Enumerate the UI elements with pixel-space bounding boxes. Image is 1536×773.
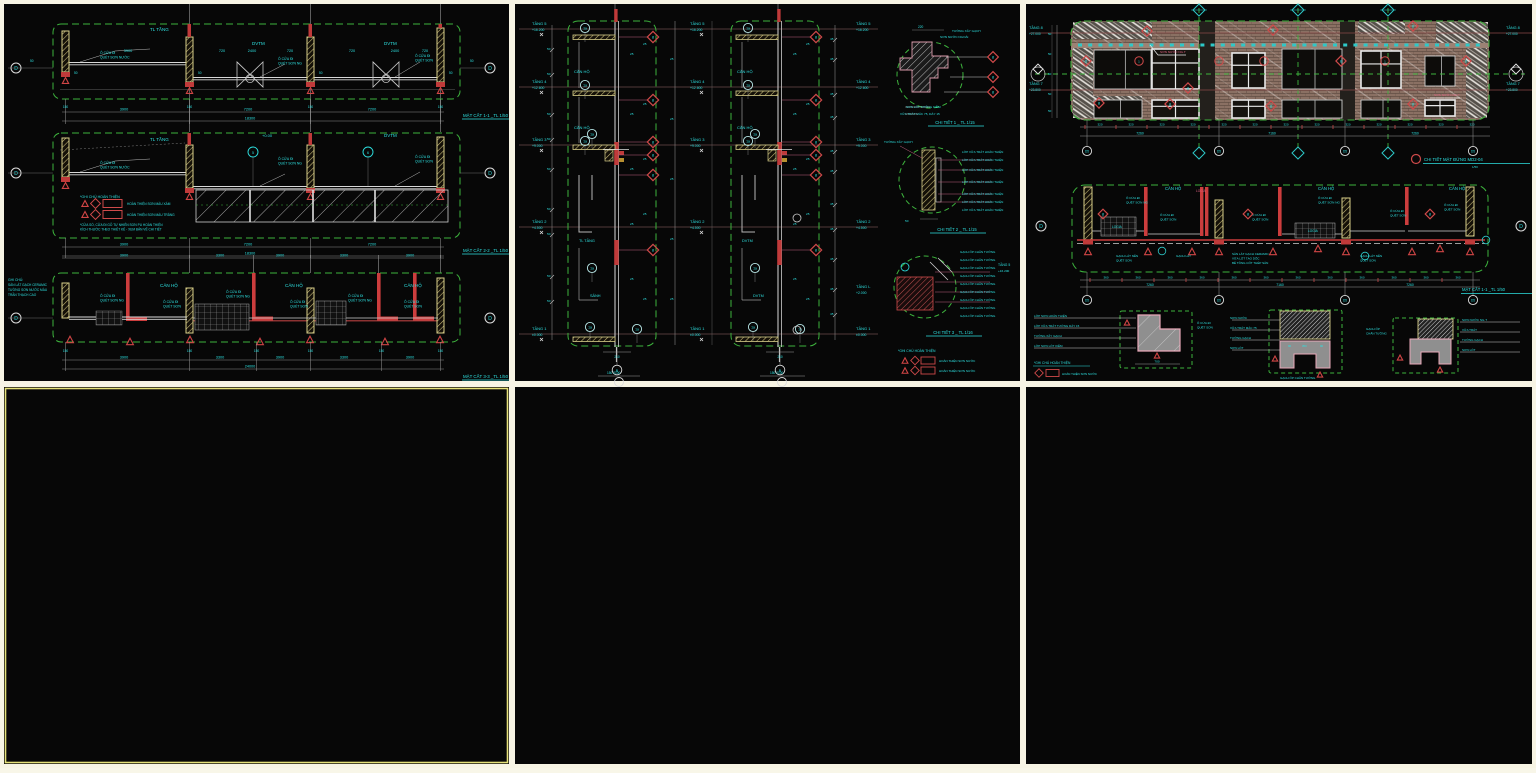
svg-text:18300: 18300 [245, 252, 256, 256]
svg-text:7200: 7200 [368, 243, 376, 247]
svg-text:210: 210 [777, 355, 783, 359]
svg-text:GẠCH ỐP CHÂN TƯỜNG: GẠCH ỐP CHÂN TƯỜNG [960, 273, 996, 278]
svg-text:BÊ TÔNG CỐT THÉP SÀN: BÊ TÔNG CỐT THÉP SÀN [1232, 260, 1268, 265]
svg-text:QUÉT SƠN NƯỚC: QUÉT SƠN NƯỚC [100, 55, 130, 60]
svg-text:DVTM: DVTM [384, 41, 397, 46]
svg-text:D: D [14, 66, 18, 72]
svg-text:320: 320 [1283, 123, 1288, 127]
svg-text:±0.000: ±0.000 [532, 333, 542, 337]
svg-text:45: 45 [830, 202, 834, 206]
svg-text:360: 360 [1263, 276, 1268, 280]
svg-text:24000: 24000 [245, 365, 256, 369]
svg-text:LỚP VỮA TRÁT TƯỜNG DÀY 15: LỚP VỮA TRÁT TƯỜNG DÀY 15 [1034, 323, 1080, 328]
svg-text:3900: 3900 [120, 243, 128, 247]
svg-text:TẦNG 7: TẦNG 7 [1029, 82, 1043, 86]
svg-text:50: 50 [319, 71, 323, 75]
svg-text:25: 25 [643, 297, 647, 301]
svg-text:+4.500: +4.500 [532, 226, 543, 230]
svg-text:7260: 7260 [1146, 283, 1154, 287]
svg-text:TL TẦNG: TL TẦNG [150, 136, 169, 142]
svg-text:+16.200: +16.200 [998, 269, 1010, 273]
svg-text:150: 150 [438, 105, 444, 109]
svg-text:+12.600: +12.600 [532, 86, 544, 90]
svg-text:TẦNG 2: TẦNG 2 [532, 219, 547, 224]
svg-text:25: 25 [793, 222, 797, 226]
svg-text:3900: 3900 [276, 356, 284, 360]
svg-text:VỮA TRÁT MÁC 75: VỮA TRÁT MÁC 75 [1230, 325, 1257, 330]
svg-text:TẦNG 5: TẦNG 5 [690, 21, 705, 26]
svg-text:90: 90 [1320, 344, 1324, 348]
svg-text:3900: 3900 [406, 356, 414, 360]
svg-text:SƠN LÓT: SƠN LÓT [1462, 347, 1476, 352]
svg-text:HOÀN THIỆN SƠN MÀU XÁM: HOÀN THIỆN SƠN MÀU XÁM [127, 201, 171, 206]
svg-text:+2.000: +2.000 [856, 291, 867, 295]
svg-text:D5: D5 [1343, 299, 1347, 303]
svg-text:TẦNG 5: TẦNG 5 [856, 21, 871, 26]
svg-text:50: 50 [449, 71, 453, 75]
svg-text:CHI TIẾT 2 _ TL 1/15: CHI TIẾT 2 _ TL 1/15 [937, 227, 977, 232]
svg-text:50: 50 [1048, 32, 1052, 36]
svg-text:TẦNG 3: TẦNG 3 [532, 137, 547, 142]
svg-text:GẠCH ỐP CHÂN TƯỜNG: GẠCH ỐP CHÂN TƯỜNG [960, 313, 996, 318]
svg-text:45: 45 [830, 92, 834, 96]
svg-text:CĂN HỘ: CĂN HỘ [1165, 186, 1182, 191]
svg-text:150: 150 [379, 349, 385, 353]
svg-text:Ô CỬA ĐI: Ô CỬA ĐI [348, 293, 363, 298]
svg-text:25: 25 [793, 277, 797, 281]
svg-text:D: D [488, 316, 492, 322]
svg-text:1a: 1a [746, 27, 750, 31]
svg-text:GẠCH ỐP CHÂN TƯỜNG: GẠCH ỐP CHÂN TƯỜNG [960, 297, 996, 302]
svg-text:25: 25 [806, 102, 810, 106]
svg-text:TẦNG 3: TẦNG 3 [690, 137, 705, 142]
svg-text:320: 320 [1469, 123, 1474, 127]
svg-text:150: 150 [187, 105, 193, 109]
svg-text:7200: 7200 [368, 108, 376, 112]
svg-text:150: 150 [63, 105, 69, 109]
svg-text:45: 45 [830, 257, 834, 261]
svg-text:150: 150 [254, 349, 260, 353]
svg-text:Ô CỬA ĐI: Ô CỬA ĐI [278, 156, 293, 161]
svg-text:TẦNG 4: TẦNG 4 [690, 79, 705, 84]
svg-text:LOGIA: LOGIA [1112, 225, 1123, 229]
svg-text:SƠN LÓT CHỐNG KIỀM: SƠN LÓT CHỐNG KIỀM [906, 104, 941, 109]
svg-text:QUÉT SƠN: QUÉT SƠN [415, 58, 433, 63]
svg-text:DVTM: DVTM [753, 294, 764, 298]
svg-text:1a: 1a [798, 328, 802, 332]
svg-text:320: 320 [1221, 123, 1226, 127]
svg-text:VỮA TRÁT: VỮA TRÁT [1462, 327, 1477, 332]
svg-text:3300: 3300 [216, 356, 224, 360]
svg-text:50: 50 [30, 59, 34, 63]
svg-text:QUÉT SƠN NG: QUÉT SƠN NG [348, 298, 372, 303]
svg-text:360: 360 [1359, 276, 1364, 280]
svg-text:50: 50 [1048, 72, 1052, 76]
svg-text:GẠCH LÁT NỀN: GẠCH LÁT NỀN [1116, 253, 1138, 258]
svg-text:90: 90 [1288, 344, 1292, 348]
svg-text:+12.600: +12.600 [690, 86, 702, 90]
svg-text:50: 50 [547, 299, 551, 303]
svg-text:45: 45 [830, 37, 834, 41]
svg-text:1a: 1a [751, 326, 755, 330]
svg-text:320: 320 [1376, 123, 1381, 127]
svg-text:GẠCH ỐP CHÂN TƯỜNG: GẠCH ỐP CHÂN TƯỜNG [1280, 375, 1316, 380]
svg-text:1a: 1a [588, 326, 592, 330]
svg-text:*GHI CHÚ HOÀN THIỆN: *GHI CHÚ HOÀN THIỆN [80, 194, 120, 199]
svg-text:25: 25 [793, 167, 797, 171]
svg-text:LỚP VỮA TRÁT HOÀN THIỆN: LỚP VỮA TRÁT HOÀN THIỆN [962, 199, 1003, 204]
svg-text:50: 50 [547, 72, 551, 76]
svg-text:CĂN HỘ: CĂN HỘ [737, 125, 753, 130]
svg-text:SẢNH: SẢNH [590, 293, 601, 298]
svg-text:150: 150 [187, 349, 193, 353]
svg-text:D5: D5 [1217, 150, 1221, 154]
svg-text:Ô CỬA ĐI: Ô CỬA ĐI [100, 293, 115, 298]
svg-text:360: 360 [1231, 276, 1236, 280]
svg-text:3900: 3900 [120, 254, 128, 258]
svg-text:7160: 7160 [1268, 132, 1276, 136]
svg-text:TƯỜNG XÂY GẠCH: TƯỜNG XÂY GẠCH [1034, 333, 1062, 338]
svg-text:1a: 1a [746, 140, 750, 144]
svg-text:TẦNG 1: TẦNG 1 [690, 326, 705, 331]
svg-text:3300: 3300 [340, 254, 348, 258]
svg-text:LỚP SƠN LÓT KIỀM: LỚP SƠN LÓT KIỀM [1034, 343, 1063, 348]
svg-text:700: 700 [1154, 360, 1159, 364]
svg-text:TẦNG 7: TẦNG 7 [1506, 82, 1520, 86]
svg-text:360: 360 [1167, 276, 1172, 280]
svg-text:GẠCH LÁT NỀN: GẠCH LÁT NỀN [1360, 253, 1382, 258]
svg-text:7200: 7200 [244, 108, 252, 112]
svg-text:1a: 1a [753, 267, 757, 271]
svg-text:3900: 3900 [124, 49, 132, 53]
svg-text:50: 50 [547, 137, 551, 141]
svg-text:1a: 1a [590, 133, 594, 137]
svg-text:7260: 7260 [1411, 132, 1419, 136]
svg-text:7200: 7200 [244, 243, 252, 247]
svg-text:VỮA TRÁT MÁC 75, DÀY 15: VỮA TRÁT MÁC 75, DÀY 15 [900, 111, 940, 116]
svg-text:GẠCH ỐP CHÂN TƯỜNG: GẠCH ỐP CHÂN TƯỜNG [960, 257, 996, 262]
svg-text:25: 25 [630, 277, 634, 281]
svg-text:50: 50 [547, 232, 551, 236]
svg-text:TẦNG 1: TẦNG 1 [856, 326, 871, 331]
svg-text:350: 350 [1302, 344, 1307, 348]
svg-text:25: 25 [806, 157, 810, 161]
svg-text:50: 50 [547, 112, 551, 116]
svg-text:45: 45 [830, 312, 834, 316]
svg-text:25: 25 [630, 112, 634, 116]
svg-text:720: 720 [422, 49, 428, 53]
svg-text:Ô CỬA ĐI: Ô CỬA ĐI [404, 299, 419, 304]
svg-text:MẶT CẮT 1-1 _TL 1/50: MẶT CẮT 1-1 _TL 1/50 [463, 113, 509, 118]
svg-text:DVTM: DVTM [252, 41, 265, 46]
svg-text:6: 6 [367, 151, 369, 155]
svg-text:CĂN HỘ: CĂN HỘ [1318, 186, 1335, 191]
svg-text:CĂN HỘ: CĂN HỘ [285, 282, 303, 288]
svg-text:25: 25 [670, 117, 674, 121]
svg-text:25: 25 [643, 42, 647, 46]
svg-text:3900: 3900 [120, 108, 128, 112]
svg-text:TẦNG 4: TẦNG 4 [532, 79, 547, 84]
svg-text:25: 25 [670, 177, 674, 181]
svg-text:25: 25 [643, 102, 647, 106]
svg-text:+9.000: +9.000 [856, 144, 867, 148]
svg-text:7260: 7260 [1406, 283, 1414, 287]
svg-text:D5: D5 [1085, 299, 1089, 303]
svg-text:220: 220 [918, 25, 924, 29]
svg-text:+4.500: +4.500 [856, 226, 867, 230]
svg-text:720: 720 [287, 49, 293, 53]
svg-text:50: 50 [74, 71, 78, 75]
svg-text:SÀN LÁT GẠCH CERAMIC: SÀN LÁT GẠCH CERAMIC [8, 283, 48, 287]
svg-text:7260: 7260 [1136, 132, 1144, 136]
svg-text:50: 50 [547, 167, 551, 171]
svg-text:3300: 3300 [340, 356, 348, 360]
svg-text:Ô CỬA ĐI: Ô CỬA ĐI [1444, 202, 1458, 207]
svg-text:50: 50 [547, 274, 551, 278]
svg-text:SƠN NƯỚC NGOÀI: SƠN NƯỚC NGOÀI [940, 34, 969, 39]
svg-text:SƠN NƯỚC NG.T: SƠN NƯỚC NG.T [1160, 49, 1186, 54]
svg-text:LỚP VỮA TRÁT HOÀN THIỆN: LỚP VỮA TRÁT HOÀN THIỆN [962, 179, 1003, 184]
svg-text:TẦNG L: TẦNG L [856, 284, 871, 289]
svg-text:QUÉT SƠN NG: QUÉT SƠN NG [1126, 200, 1148, 205]
svg-text:+12.600: +12.600 [856, 86, 868, 90]
svg-text:HOÀN THIỆN SƠN NƯỚC: HOÀN THIỆN SƠN NƯỚC [939, 368, 976, 373]
svg-text:25: 25 [806, 212, 810, 216]
svg-text:GHI CHÚ:: GHI CHÚ: [8, 277, 23, 282]
svg-text:±0.000: ±0.000 [856, 333, 866, 337]
svg-text:QUÉT SƠN NG: QUÉT SƠN NG [278, 161, 302, 166]
svg-text:TƯỜNG SƠN NƯỚC MÀU: TƯỜNG SƠN NƯỚC MÀU [8, 287, 48, 292]
svg-text:CĂN HỘ: CĂN HỘ [160, 282, 178, 288]
svg-text:1a: 1a [635, 328, 639, 332]
svg-text:GẠCH ỐP CHÂN TƯỜNG: GẠCH ỐP CHÂN TƯỜNG [960, 281, 996, 286]
svg-text:50: 50 [1048, 92, 1052, 96]
svg-text:45: 45 [830, 287, 834, 291]
svg-text:25: 25 [670, 57, 674, 61]
svg-text:Ô CỬA ĐI: Ô CỬA ĐI [226, 289, 241, 294]
svg-text:Ô CỬA ĐI: Ô CỬA ĐI [1197, 320, 1211, 325]
svg-text:+0.00: +0.00 [262, 133, 273, 138]
svg-text:+16.200: +16.200 [532, 28, 544, 32]
svg-text:TẦNG 3: TẦNG 3 [856, 137, 871, 142]
svg-text:MẶT CẮT 1-1 _TL 1/50: MẶT CẮT 1-1 _TL 1/50 [1462, 287, 1506, 292]
svg-text:1a: 1a [583, 27, 587, 31]
svg-text:50: 50 [905, 219, 909, 223]
svg-text:GẠCH LÁT: GẠCH LÁT [1176, 254, 1191, 258]
svg-text:KÍCH THƯỚC THEO THIẾT KẾ - XEM: KÍCH THƯỚC THEO THIẾT KẾ - XEM BẢN VẼ CH… [80, 227, 162, 232]
svg-text:320: 320 [1345, 123, 1350, 127]
svg-text:+9.000: +9.000 [532, 144, 543, 148]
svg-text:LỚP VỮA TRÁT HOÀN THIỆN: LỚP VỮA TRÁT HOÀN THIỆN [962, 191, 1003, 196]
svg-text:360: 360 [1295, 276, 1300, 280]
svg-text:LỚP VỮA TRÁT HOÀN THIỆN: LỚP VỮA TRÁT HOÀN THIỆN [962, 167, 1003, 172]
svg-text:25: 25 [793, 112, 797, 116]
svg-text:+27.000: +27.000 [1029, 32, 1041, 36]
svg-text:1a: 1a [746, 84, 750, 88]
svg-text:360: 360 [1103, 276, 1108, 280]
svg-text:CHI TIẾT MẶT ĐỨNG MD2-04: CHI TIẾT MẶT ĐỨNG MD2-04 [1424, 157, 1483, 162]
svg-text:QUÉT SƠN: QUÉT SƠN [290, 304, 308, 309]
svg-text:QUÉT SƠN: QUÉT SƠN [1252, 217, 1268, 222]
svg-text:720: 720 [349, 49, 355, 53]
svg-text:CĂN HỘ: CĂN HỘ [1449, 186, 1466, 191]
svg-text:SƠN NƯỚC NG.T: SƠN NƯỚC NG.T [1434, 92, 1460, 97]
svg-text:1/50: 1/50 [1472, 165, 1478, 169]
svg-text:CĂN HỘ: CĂN HỘ [404, 282, 422, 288]
svg-text:150: 150 [63, 349, 69, 353]
svg-text:25: 25 [806, 297, 810, 301]
svg-text:+23.800: +23.800 [1029, 88, 1041, 92]
svg-text:MẶT CẮT 3-3 _TL 1/50: MẶT CẮT 3-3 _TL 1/50 [463, 374, 509, 379]
svg-text:TẦNG 8: TẦNG 8 [1506, 26, 1520, 30]
svg-text:MẶT CẮT 2-2 _TL 1/50: MẶT CẮT 2-2 _TL 1/50 [463, 248, 509, 253]
svg-text:150: 150 [438, 349, 444, 353]
svg-text:45: 45 [830, 149, 834, 153]
svg-text:360: 360 [1199, 276, 1204, 280]
svg-text:D: D [14, 171, 18, 177]
svg-text:25: 25 [630, 222, 634, 226]
svg-text:SÀN LÁT GẠCH CERAMIC: SÀN LÁT GẠCH CERAMIC [1232, 252, 1269, 256]
svg-text:360: 360 [1391, 276, 1396, 280]
svg-text:D5: D5 [1085, 150, 1089, 154]
svg-text:HOÀN THIỆN SƠN NƯỚC: HOÀN THIỆN SƠN NƯỚC [1062, 371, 1097, 376]
svg-text:50: 50 [1048, 52, 1052, 56]
svg-text:150: 150 [308, 105, 314, 109]
svg-text:3900: 3900 [276, 254, 284, 258]
svg-text:QUÉT SƠN: QUÉT SƠN [1160, 217, 1176, 222]
svg-text:+27.000: +27.000 [1506, 32, 1518, 36]
svg-text:25: 25 [643, 157, 647, 161]
svg-text:GẠCH ỐP: GẠCH ỐP [1366, 326, 1380, 331]
svg-text:QUÉT SƠN NG: QUÉT SƠN NG [278, 61, 302, 66]
svg-text:QUÉT SƠN NG: QUÉT SƠN NG [1318, 200, 1340, 205]
svg-text:1a: 1a [753, 133, 757, 137]
svg-text:D: D [14, 316, 18, 322]
svg-text:QUÉT SƠN: QUÉT SƠN [1444, 207, 1460, 212]
svg-text:1a: 1a [583, 84, 587, 88]
svg-text:360: 360 [1135, 276, 1140, 280]
svg-text:Ô CỬA ĐI: Ô CỬA ĐI [1390, 208, 1404, 213]
svg-text:DVTM: DVTM [742, 239, 753, 243]
svg-text:210: 210 [614, 355, 620, 359]
svg-text:±0.000: ±0.000 [690, 333, 700, 337]
svg-text:50: 50 [547, 207, 551, 211]
svg-text:VỮA LÓT TẠO DỐC: VỮA LÓT TẠO DỐC [1232, 256, 1260, 261]
svg-text:D5: D5 [1471, 299, 1475, 303]
svg-text:320: 320 [1407, 123, 1412, 127]
svg-text:TẦNG 2: TẦNG 2 [856, 219, 871, 224]
svg-text:SƠN NƯỚC NG.T: SƠN NƯỚC NG.T [1462, 317, 1487, 322]
svg-text:D5: D5 [1217, 299, 1221, 303]
svg-text:25: 25 [630, 52, 634, 56]
svg-text:50: 50 [547, 47, 551, 51]
svg-text:QUÉT SƠN: QUÉT SƠN [1197, 325, 1213, 330]
svg-text:LOGIA: LOGIA [1196, 189, 1207, 193]
svg-text:D: D [488, 66, 492, 72]
svg-text:+9.000: +9.000 [690, 144, 701, 148]
svg-text:TRẦN THẠCH CAO: TRẦN THẠCH CAO [8, 293, 37, 297]
svg-text:25: 25 [670, 297, 674, 301]
svg-text:TƯỜNG XÂY GẠCH: TƯỜNG XÂY GẠCH [884, 139, 913, 144]
svg-text:LỚP SƠN HOÀN THIỆN: LỚP SƠN HOÀN THIỆN [1034, 313, 1067, 318]
svg-text:QUÉT SƠN: QUÉT SƠN [404, 304, 422, 309]
svg-text:45: 45 [830, 227, 834, 231]
svg-text:HOÀN THIỆN SƠN MÀU TRẮNG: HOÀN THIỆN SƠN MÀU TRẮNG [127, 212, 175, 217]
svg-text:25: 25 [630, 167, 634, 171]
svg-text:45: 45 [830, 115, 834, 119]
svg-text:TƯỜNG GẠCH: TƯỜNG GẠCH [1462, 337, 1483, 342]
svg-text:+16.200: +16.200 [690, 28, 702, 32]
svg-text:TẦNG 4: TẦNG 4 [856, 79, 871, 84]
svg-text:Ô CỬA ĐI: Ô CỬA ĐI [415, 53, 430, 58]
svg-text:320: 320 [1097, 123, 1102, 127]
svg-text:150 2100: 150 2100 [770, 371, 784, 375]
svg-text:Ô CỬA ĐI: Ô CỬA ĐI [415, 154, 430, 159]
svg-text:50: 50 [198, 71, 202, 75]
svg-text:2400: 2400 [391, 49, 399, 53]
svg-text:TẦNG 5: TẦNG 5 [532, 21, 547, 26]
svg-text:D5: D5 [1471, 150, 1475, 154]
svg-text:720: 720 [219, 49, 225, 53]
svg-text:5: 5 [252, 151, 254, 155]
svg-text:Ô CỬA ĐI: Ô CỬA ĐI [1318, 195, 1332, 200]
svg-text:18300: 18300 [245, 117, 256, 121]
svg-text:TẦNG 5: TẦNG 5 [998, 263, 1010, 267]
svg-text:QUÉT SƠN: QUÉT SƠN [1116, 258, 1132, 263]
svg-text:D5: D5 [1343, 150, 1347, 154]
svg-text:Ô CỬA ĐI: Ô CỬA ĐI [1160, 212, 1174, 217]
svg-text:25: 25 [670, 237, 674, 241]
svg-text:D: D [1039, 224, 1043, 230]
svg-text:360: 360 [1423, 276, 1428, 280]
svg-text:2400: 2400 [248, 49, 256, 53]
svg-text:150: 150 [308, 349, 314, 353]
svg-text:GẠCH ỐP CHÂN TƯỜNG: GẠCH ỐP CHÂN TƯỜNG [960, 289, 996, 294]
svg-text:TẦNG 8: TẦNG 8 [1029, 26, 1043, 30]
svg-text:QUÉT SƠN NƯỚC: QUÉT SƠN NƯỚC [100, 165, 130, 170]
svg-text:*GHI CHÚ HOÀN THIỆN: *GHI CHÚ HOÀN THIỆN [1034, 360, 1071, 365]
svg-text:GẠCH ỐP CHÂN TƯỜNG: GẠCH ỐP CHÂN TƯỜNG [960, 265, 996, 270]
svg-text:SƠN NƯỚC: SƠN NƯỚC [1230, 315, 1248, 320]
svg-text:320: 320 [1159, 123, 1164, 127]
svg-text:45: 45 [830, 57, 834, 61]
svg-text:25: 25 [643, 212, 647, 216]
svg-text:Ô CỬA ĐI: Ô CỬA ĐI [100, 50, 115, 55]
svg-text:QUÉT SƠN: QUÉT SƠN [415, 159, 433, 164]
svg-text:Ô CỬA ĐI: Ô CỬA ĐI [290, 299, 305, 304]
svg-text:TL TẦNG: TL TẦNG [579, 239, 595, 243]
svg-text:25: 25 [806, 42, 810, 46]
svg-text:+23.800: +23.800 [1506, 88, 1518, 92]
svg-text:+16.200: +16.200 [856, 28, 868, 32]
svg-text:LỚP VỮA TRÁT HOÀN THIỆN: LỚP VỮA TRÁT HOÀN THIỆN [962, 149, 1003, 154]
svg-text:Ô CỬA ĐI: Ô CỬA ĐI [1126, 195, 1140, 200]
svg-text:CĂN HỘ: CĂN HỘ [737, 69, 753, 74]
svg-text:QUÉT SƠN: QUÉT SƠN [163, 304, 181, 309]
svg-text:SƠN LÓT: SƠN LÓT [1230, 345, 1244, 350]
svg-text:3900: 3900 [406, 254, 414, 258]
svg-text:Ô CỬA ĐI: Ô CỬA ĐI [163, 299, 178, 304]
svg-text:TƯỜNG GẠCH: TƯỜNG GẠCH [1230, 335, 1251, 340]
svg-text:Ô CỬA ĐI: Ô CỬA ĐI [1252, 212, 1266, 217]
svg-text:360: 360 [1327, 276, 1332, 280]
svg-text:7160: 7160 [1276, 283, 1284, 287]
svg-text:QUÉT SƠN: QUÉT SƠN [1390, 213, 1406, 218]
svg-text:150 2100: 150 2100 [607, 371, 621, 375]
svg-text:LỚP VỮA TRÁT HOÀN THIỆN: LỚP VỮA TRÁT HOÀN THIỆN [962, 207, 1003, 212]
svg-text:3300: 3300 [216, 254, 224, 258]
svg-text:CHI TIẾT 3 _ TL 1/16: CHI TIẾT 3 _ TL 1/16 [933, 330, 973, 335]
